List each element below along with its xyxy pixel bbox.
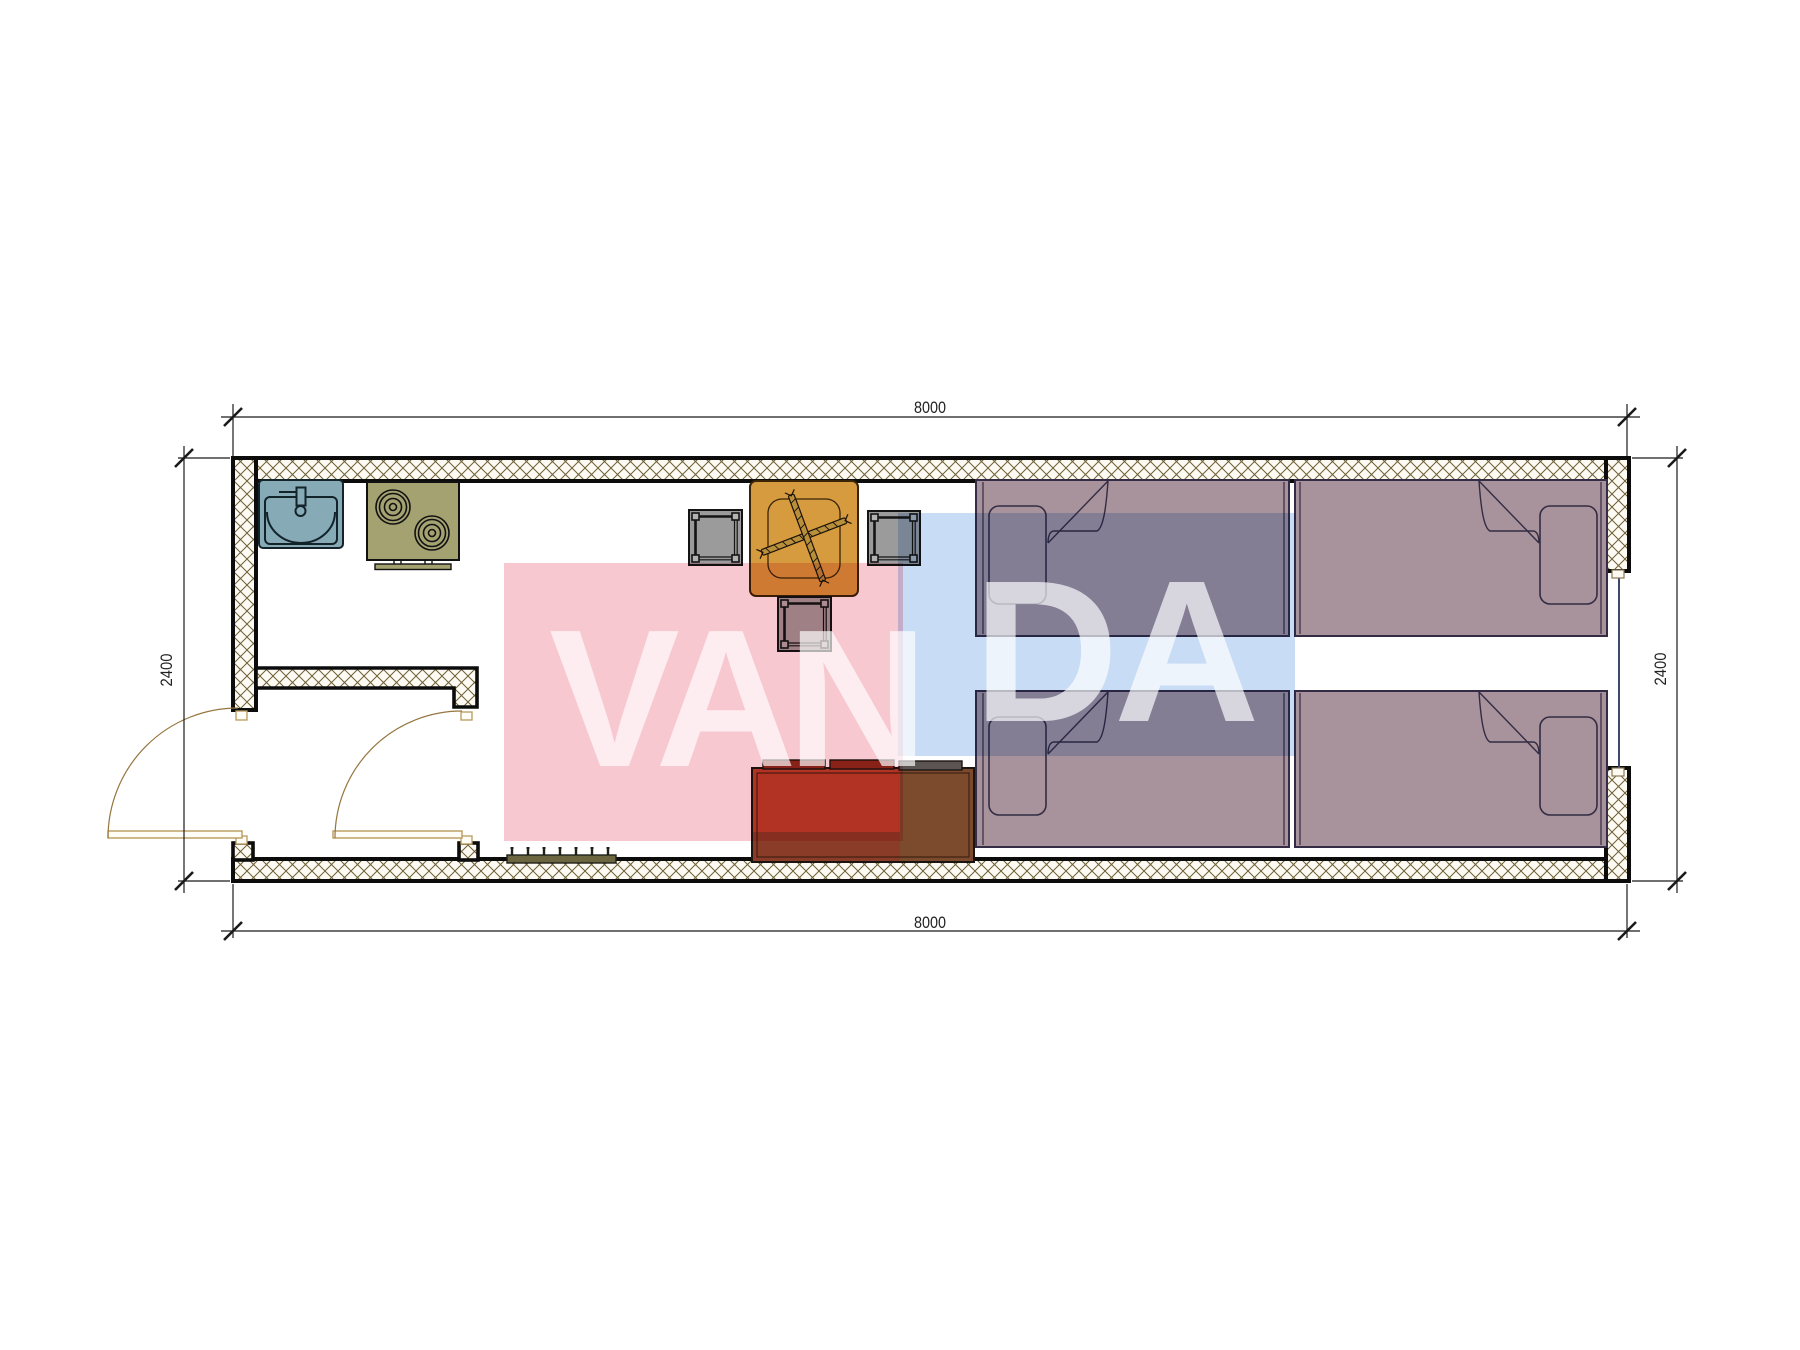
svg-text:8000: 8000 xyxy=(914,398,946,417)
svg-text:2400: 2400 xyxy=(1651,653,1670,686)
svg-text:2400: 2400 xyxy=(157,654,176,687)
svg-text:VAN: VAN xyxy=(549,589,918,808)
svg-text:8000: 8000 xyxy=(914,913,946,932)
svg-text:DA: DA xyxy=(973,538,1255,764)
